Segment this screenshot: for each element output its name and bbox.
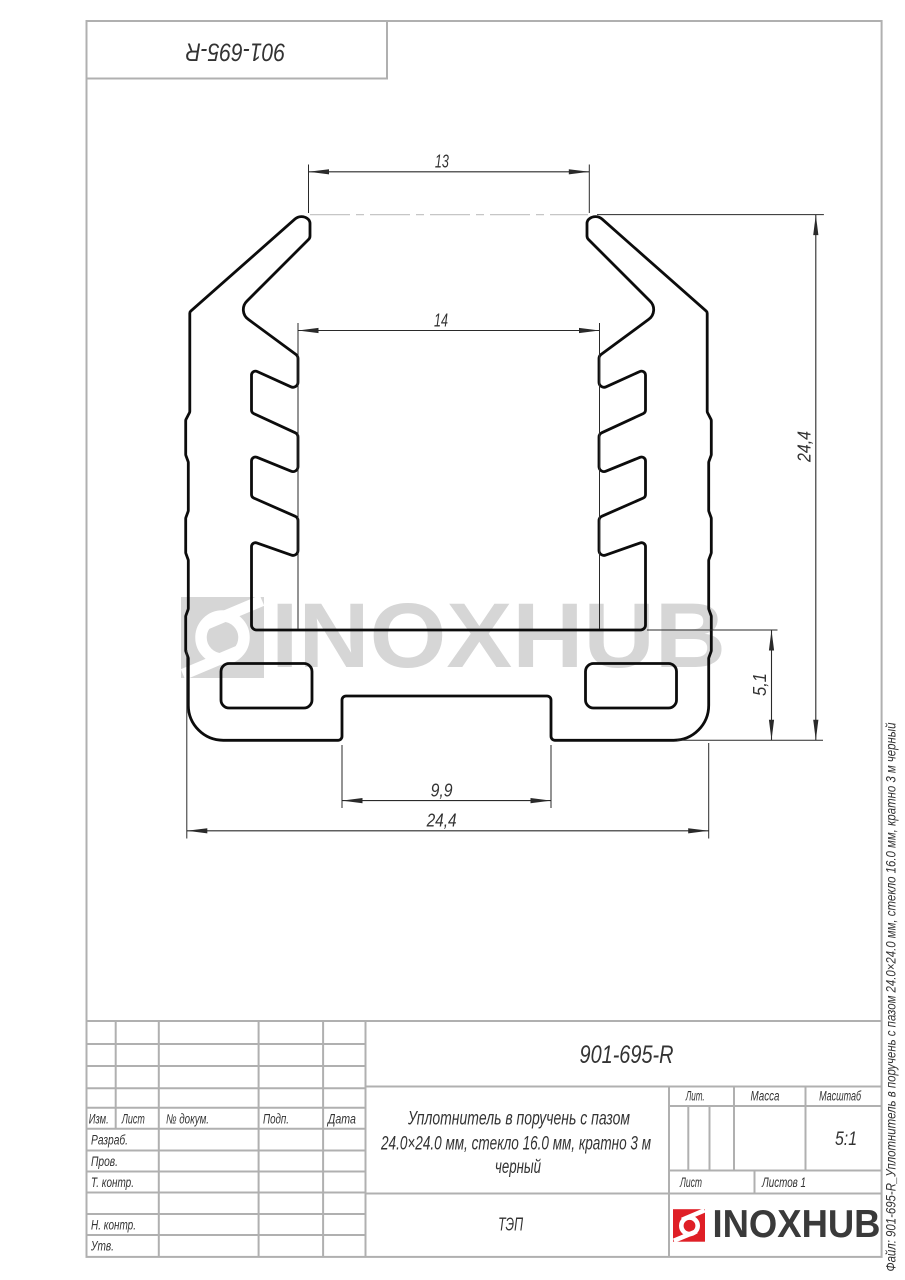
svg-text:24,4: 24,4 <box>795 431 815 463</box>
svg-text:Лист: Лист <box>121 1111 145 1126</box>
svg-text:Н. контр.: Н. контр. <box>91 1217 136 1232</box>
svg-text:5:1: 5:1 <box>835 1129 857 1150</box>
svg-text:Разраб.: Разраб. <box>91 1133 128 1148</box>
svg-text:Дата: Дата <box>326 1111 356 1126</box>
svg-text:Лист: Лист <box>679 1175 702 1190</box>
svg-text:901-695-R: 901-695-R <box>186 38 286 66</box>
svg-text:Пров.: Пров. <box>91 1154 118 1169</box>
svg-text:14: 14 <box>434 311 448 331</box>
svg-text:черный: черный <box>495 1157 541 1178</box>
svg-text:Масса: Масса <box>751 1089 780 1104</box>
svg-text:Подп.: Подп. <box>263 1111 289 1126</box>
svg-text:9,9: 9,9 <box>431 780 453 800</box>
svg-text:13: 13 <box>435 151 449 171</box>
svg-text:Утв.: Утв. <box>90 1239 114 1254</box>
svg-text:24,4: 24,4 <box>426 811 457 831</box>
svg-text:Уплотнитель в поручень с пазом: Уплотнитель в поручень с пазом <box>407 1108 630 1129</box>
svg-text:Т. контр.: Т. контр. <box>91 1175 134 1190</box>
svg-text:ТЭП: ТЭП <box>498 1215 524 1235</box>
svg-text:Листов 1: Листов 1 <box>761 1175 806 1190</box>
svg-text:INOXHUB: INOXHUB <box>713 1203 881 1246</box>
svg-text:901-695-R: 901-695-R <box>580 1041 674 1069</box>
svg-text:24.0×24.0 мм, стекло 16.0 мм,: 24.0×24.0 мм, стекло 16.0 мм, кратно 3 м <box>380 1134 651 1155</box>
svg-text:Масштаб: Масштаб <box>819 1089 861 1104</box>
svg-text:Изм.: Изм. <box>89 1111 109 1126</box>
svg-text:№ докум.: № докум. <box>166 1111 209 1126</box>
svg-text:Лит.: Лит. <box>685 1089 705 1104</box>
svg-text:INOXHUB: INOXHUB <box>271 585 726 687</box>
svg-text:5,1: 5,1 <box>750 673 770 696</box>
svg-text:Файл: 901-695-R_Уплотнитель в: Файл: 901-695-R_Уплотнитель в поручень с… <box>883 722 899 1271</box>
